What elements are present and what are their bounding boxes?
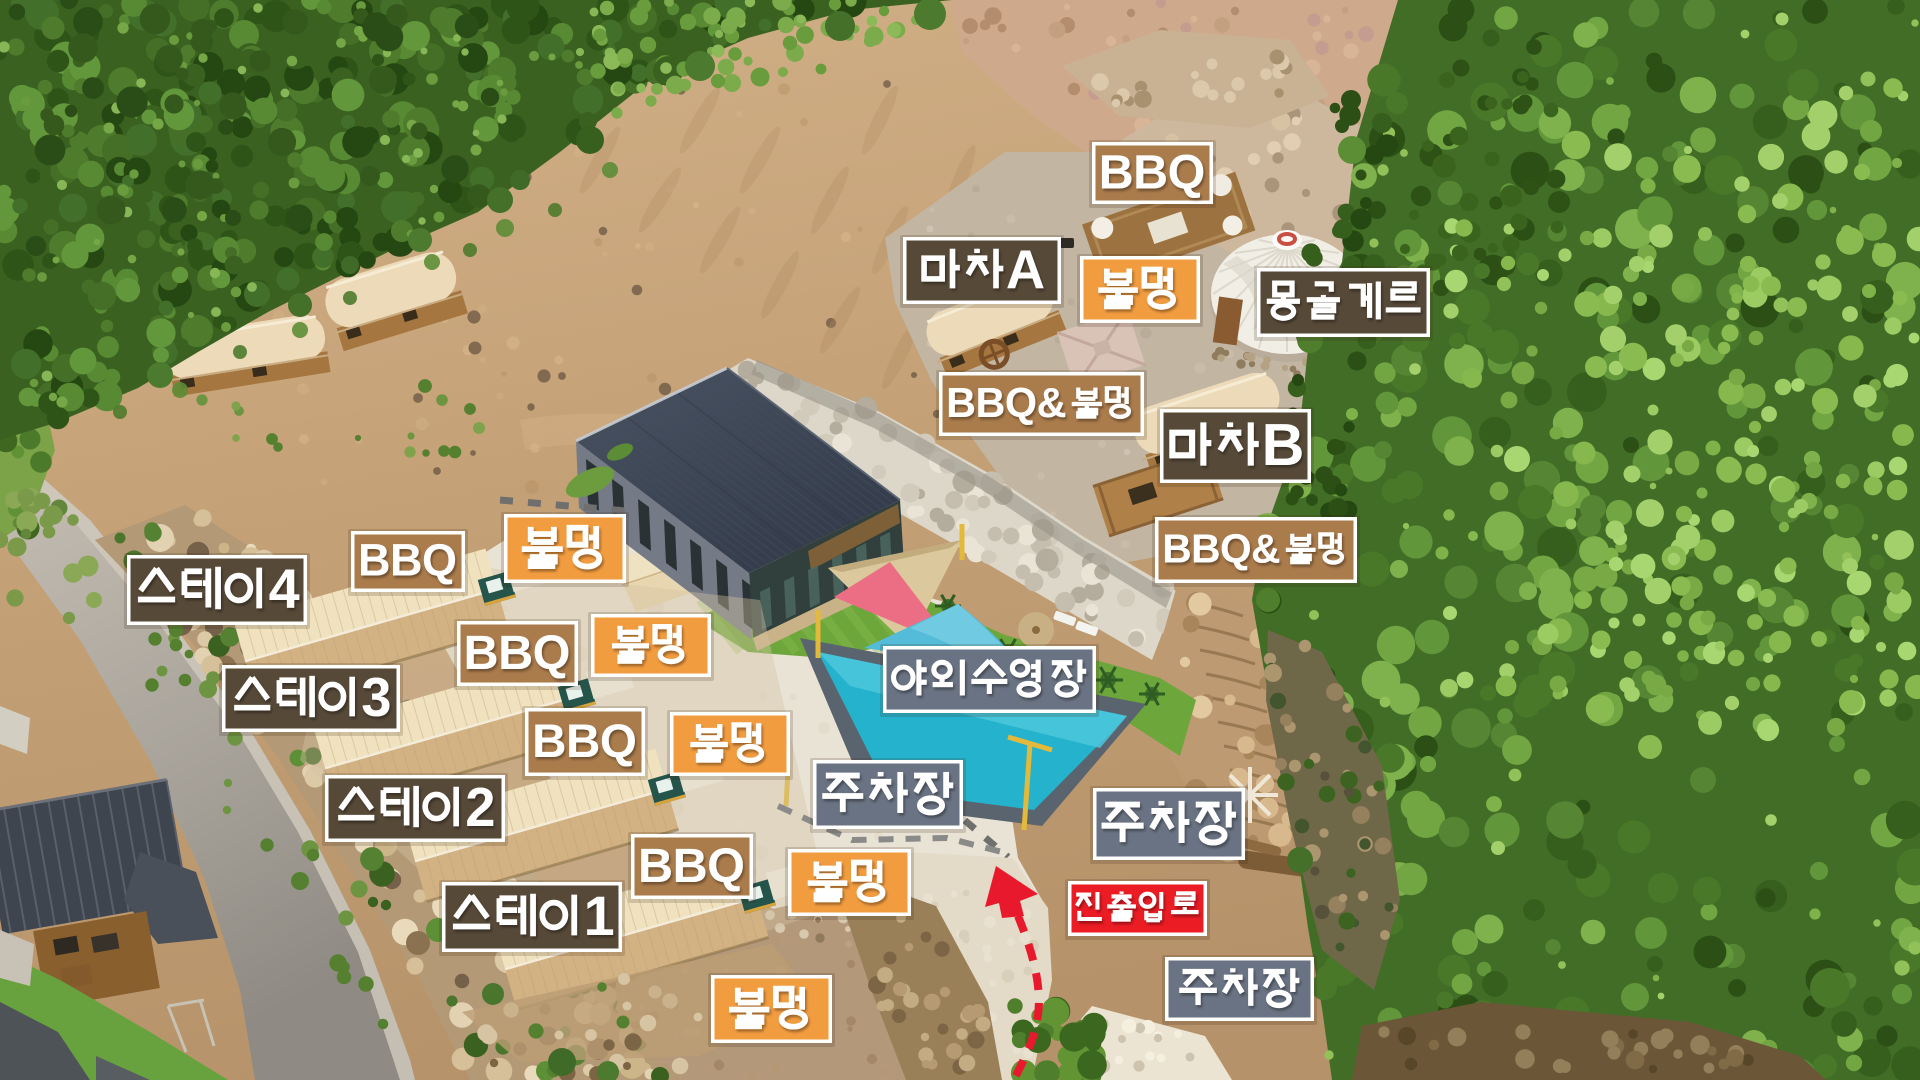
svg-text:BBQ: BBQ: [638, 839, 744, 893]
svg-text:4: 4: [269, 557, 300, 620]
svg-text:2: 2: [465, 777, 495, 838]
svg-text:BBQ: BBQ: [464, 626, 570, 680]
svg-text:BBQ: BBQ: [358, 535, 457, 586]
svg-text:BBQ: BBQ: [532, 715, 636, 768]
svg-text:BBQ: BBQ: [1099, 145, 1205, 199]
svg-text:B: B: [1262, 411, 1304, 478]
svg-text:A: A: [1006, 239, 1045, 300]
svg-text:1: 1: [584, 884, 615, 947]
svg-text:BBQ&: BBQ&: [946, 380, 1066, 426]
svg-text:3: 3: [361, 667, 391, 728]
svg-text:BBQ&: BBQ&: [1162, 526, 1280, 572]
